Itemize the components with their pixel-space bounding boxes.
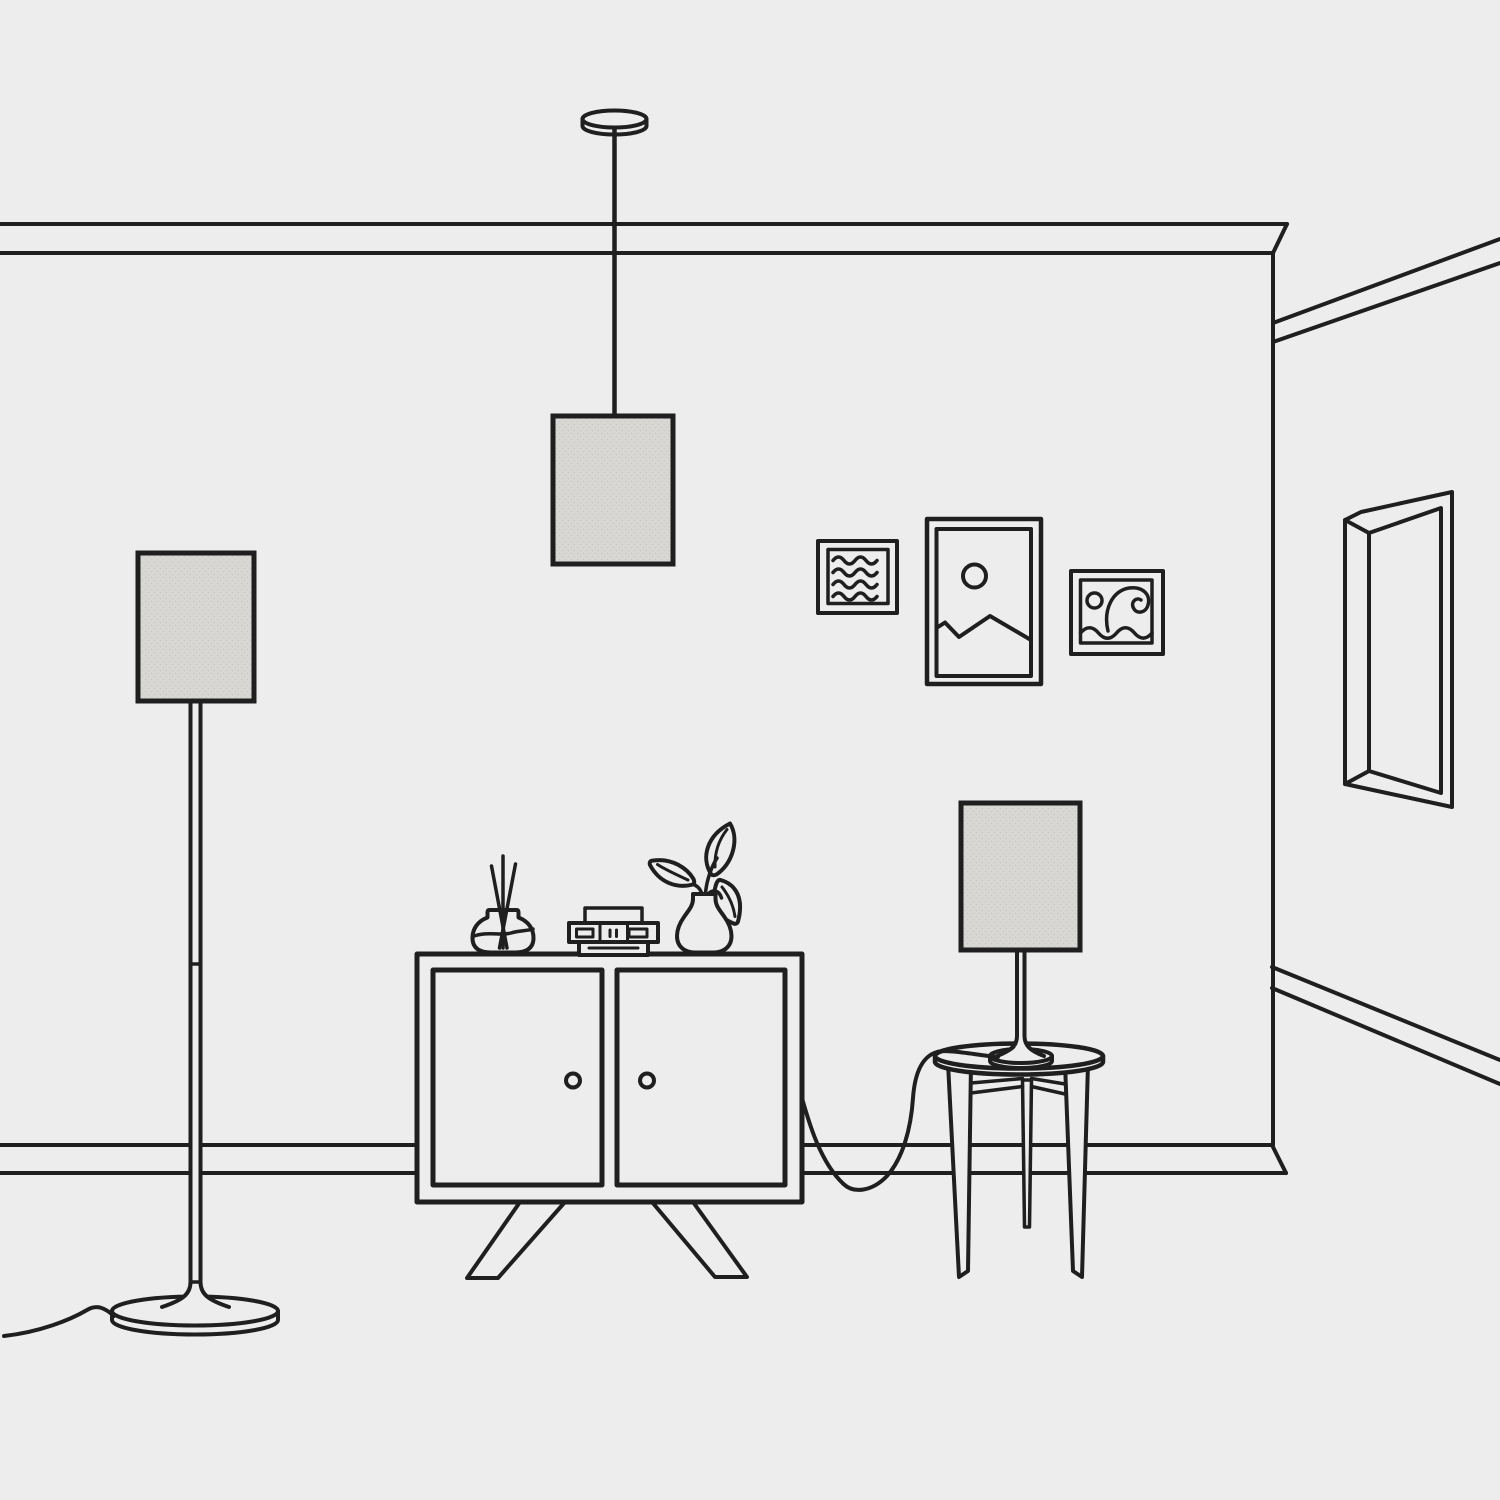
pendant-shade — [553, 416, 673, 564]
floor-lamp-cord — [4, 1307, 114, 1336]
side-table — [935, 1044, 1103, 1278]
pendant-canopy — [583, 111, 647, 128]
table-leg-left — [948, 1063, 971, 1277]
side-wall-crown-top — [1273, 239, 1500, 323]
floor-lamp-shade — [138, 553, 254, 701]
cabinet-leg-right — [652, 1202, 747, 1277]
side-wall-baseboard-bottom — [1272, 988, 1500, 1084]
plant-vase — [650, 824, 740, 953]
wall-mirror — [1345, 492, 1452, 807]
table-lamp-shade — [961, 803, 1080, 950]
sun-icon — [963, 565, 986, 588]
leaf-right-vein — [722, 887, 735, 917]
crown-molding-miter — [1273, 224, 1287, 253]
side-wall-crown-bottom — [1273, 263, 1500, 342]
frame-mountain-outer — [927, 519, 1041, 684]
table-lamp-stem-left — [997, 950, 1017, 1056]
book-stack — [569, 908, 658, 955]
table-leg-right — [1065, 1063, 1088, 1277]
illustration-canvas: Minimal line-art living room illustratio… — [0, 0, 1500, 1500]
swirl-sun-icon — [1087, 593, 1102, 608]
book-middle — [569, 923, 658, 942]
pendant-lamp — [553, 111, 673, 565]
baseboard-miter — [1272, 1145, 1286, 1173]
frame-mountain — [927, 519, 1041, 684]
frame-swirl — [1071, 571, 1163, 654]
table-leg-center — [1023, 1080, 1032, 1227]
table-lamp — [800, 803, 1080, 1190]
cabinet-body — [417, 954, 802, 1202]
reed-diffuser — [473, 856, 534, 953]
book-top — [585, 908, 642, 923]
cabinet-leg-left — [467, 1202, 565, 1278]
wave-swirl-icon — [1107, 588, 1149, 631]
mirror-outer-frame — [1345, 492, 1452, 807]
frame-waves — [818, 541, 897, 613]
table-aprons — [971, 1079, 1065, 1095]
frame-mountain-inner — [937, 529, 1032, 676]
table-lamp-stem-right — [1025, 950, 1045, 1056]
frame-waves-art — [833, 557, 877, 600]
floor-lamp — [4, 553, 278, 1336]
side-wall-baseboard-top — [1272, 967, 1500, 1060]
wave-bottom-line — [1081, 628, 1153, 639]
cabinet — [417, 954, 802, 1278]
living-room-illustration: Minimal line-art living room illustratio… — [0, 0, 1500, 1500]
vase-body — [677, 894, 732, 953]
mountain-icon — [937, 616, 1032, 640]
